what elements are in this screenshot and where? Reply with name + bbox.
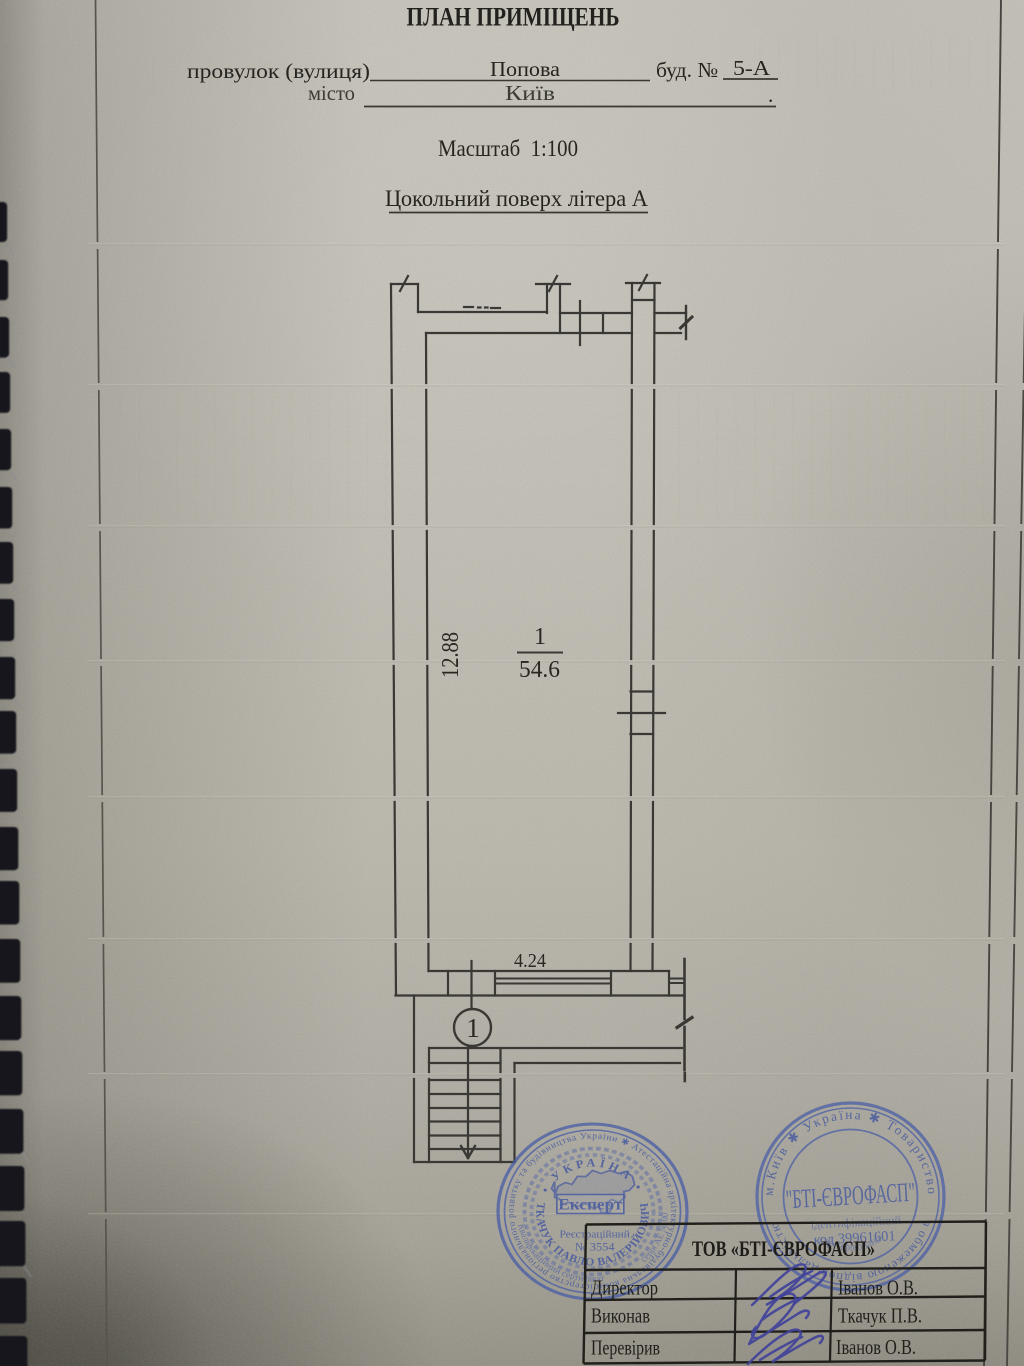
svg-text:1: 1: [534, 624, 546, 650]
svg-text:Цокольний поверх літера А: Цокольний поверх літера А: [385, 186, 648, 211]
svg-text:Іванов О.В.: Іванов О.В.: [838, 1276, 918, 1300]
svg-text:Перевірив: Перевірив: [591, 1336, 660, 1360]
svg-text:провулок (вулиця): провулок (вулиця): [187, 59, 370, 83]
svg-text:буд. №: буд. №: [656, 58, 718, 82]
svg-text:Директор: Директор: [591, 1276, 658, 1300]
svg-text:місто: місто: [308, 81, 355, 105]
svg-text:Виконав: Виконав: [591, 1304, 650, 1328]
svg-text:Іванов О.В.: Іванов О.В.: [836, 1335, 916, 1359]
svg-text:1: 1: [466, 1013, 480, 1043]
svg-text:4.24: 4.24: [514, 950, 546, 972]
svg-text:12.88: 12.88: [438, 632, 464, 678]
svg-text:.: .: [768, 83, 773, 107]
svg-text:ТОВ «БТІ-ЄВРОФАСП»: ТОВ «БТІ-ЄВРОФАСП»: [692, 1236, 875, 1261]
svg-text:Київ: Київ: [505, 81, 555, 105]
svg-text:Масштаб 1:100: Масштаб 1:100: [438, 136, 578, 161]
svg-text:5-А: 5-А: [733, 56, 771, 80]
svg-text:№ 3554: № 3554: [575, 1240, 615, 1253]
svg-text:Реєстраційний: Реєстраційний: [560, 1229, 630, 1241]
svg-text:Експерт: Експерт: [558, 1195, 622, 1213]
svg-text:ПЛАН ПРИМІЩЕНЬ: ПЛАН ПРИМІЩЕНЬ: [407, 3, 620, 32]
svg-text:Ткачук П.В.: Ткачук П.В.: [838, 1304, 922, 1328]
svg-text:Попова: Попова: [490, 57, 560, 81]
svg-text:54.6: 54.6: [519, 657, 560, 683]
